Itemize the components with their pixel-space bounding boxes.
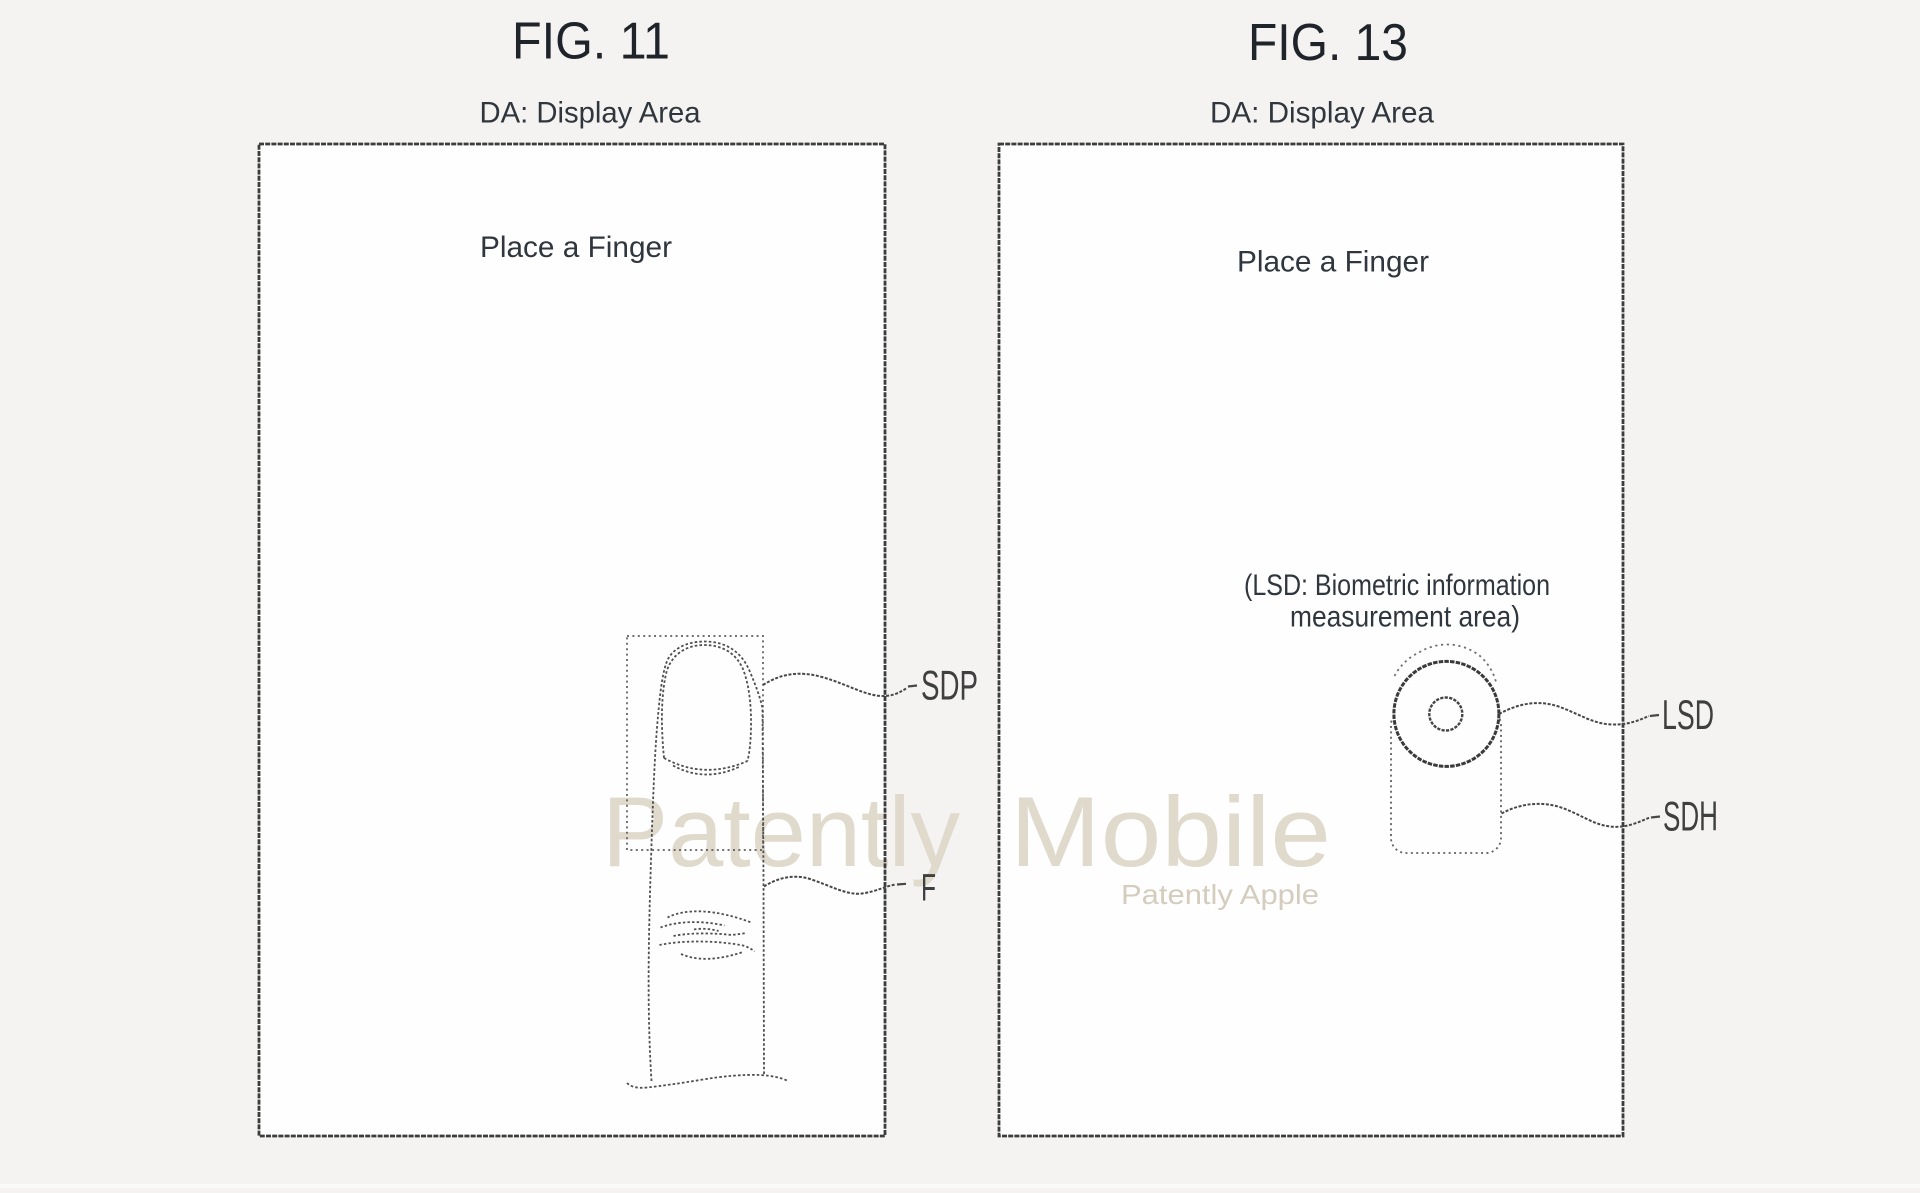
svg-text:FIG. 13: FIG. 13 — [1248, 14, 1408, 72]
svg-text:measurement area): measurement area) — [1290, 601, 1520, 634]
svg-text:SDH: SDH — [1663, 793, 1718, 840]
svg-text:Mobile: Mobile — [1010, 776, 1331, 887]
svg-text:FIG. 11: FIG. 11 — [512, 13, 670, 71]
svg-text:F: F — [921, 868, 936, 910]
svg-text:DA: Display Area: DA: Display Area — [1210, 97, 1434, 130]
svg-text:(LSD: Biometric information: (LSD: Biometric information — [1244, 569, 1550, 602]
svg-text:DA: Display Area: DA: Display Area — [480, 97, 701, 130]
svg-text:Place a Finger: Place a Finger — [1237, 246, 1429, 279]
svg-text:LSD: LSD — [1662, 691, 1714, 738]
svg-text:Patently: Patently — [602, 776, 960, 887]
svg-text:SDP: SDP — [921, 662, 978, 709]
svg-text:Place a Finger: Place a Finger — [480, 231, 672, 264]
svg-text:Patently Apple: Patently Apple — [1121, 879, 1319, 910]
